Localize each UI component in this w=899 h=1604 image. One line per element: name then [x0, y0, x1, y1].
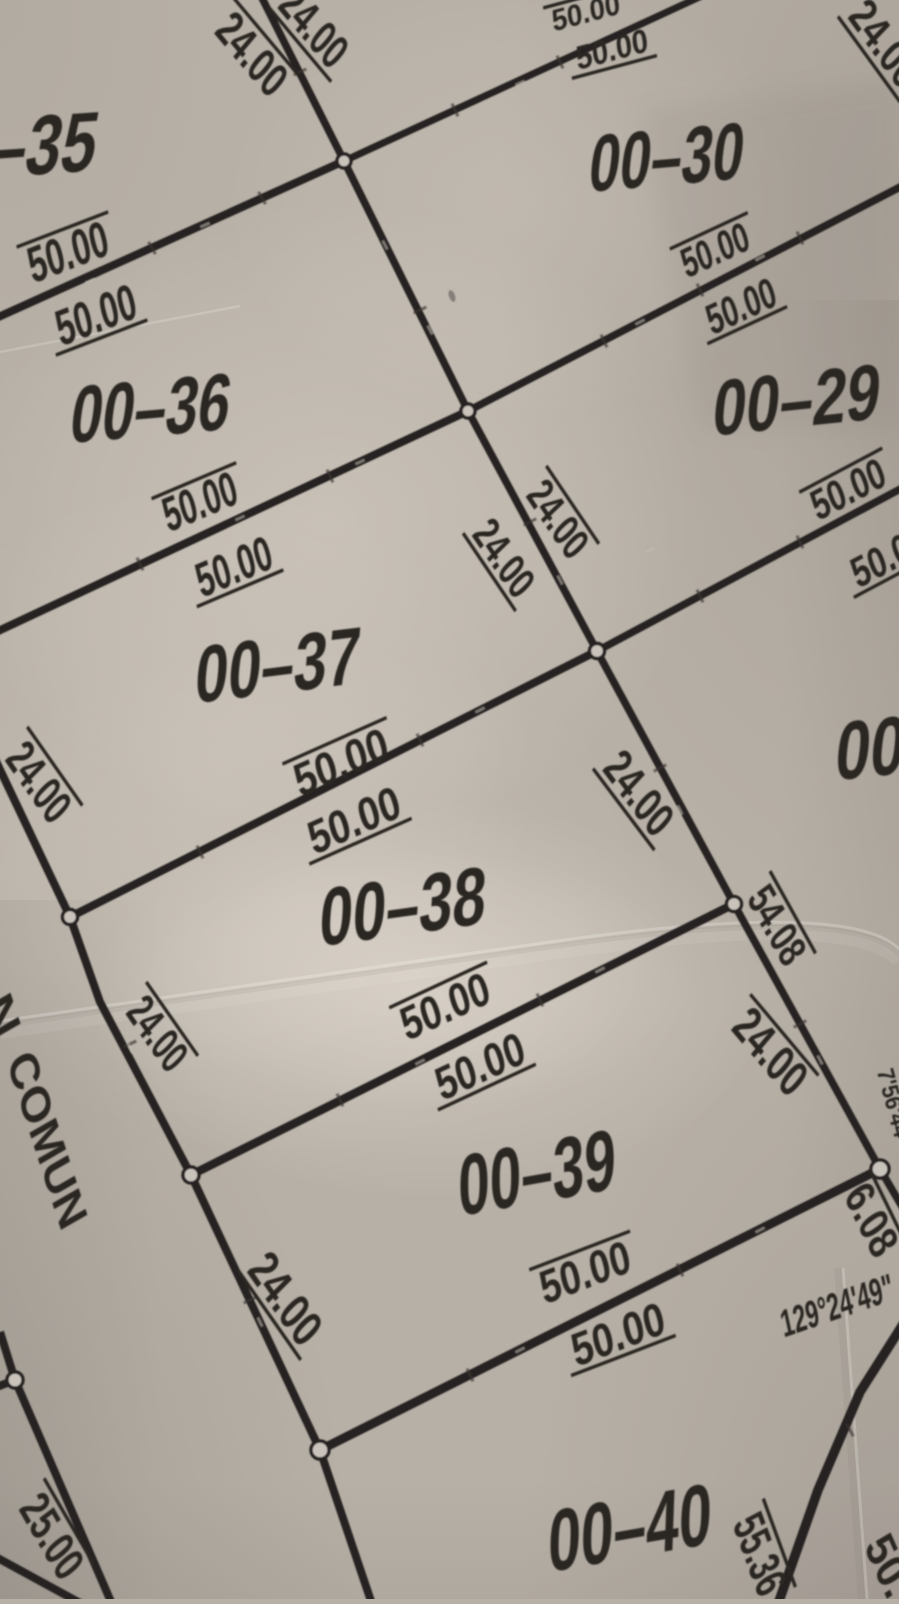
- svg-text:00–29: 00–29: [709, 347, 885, 453]
- svg-text:00–30: 00–30: [584, 106, 749, 210]
- svg-text:00: 00: [831, 698, 899, 799]
- svg-text:00–36: 00–36: [65, 357, 237, 461]
